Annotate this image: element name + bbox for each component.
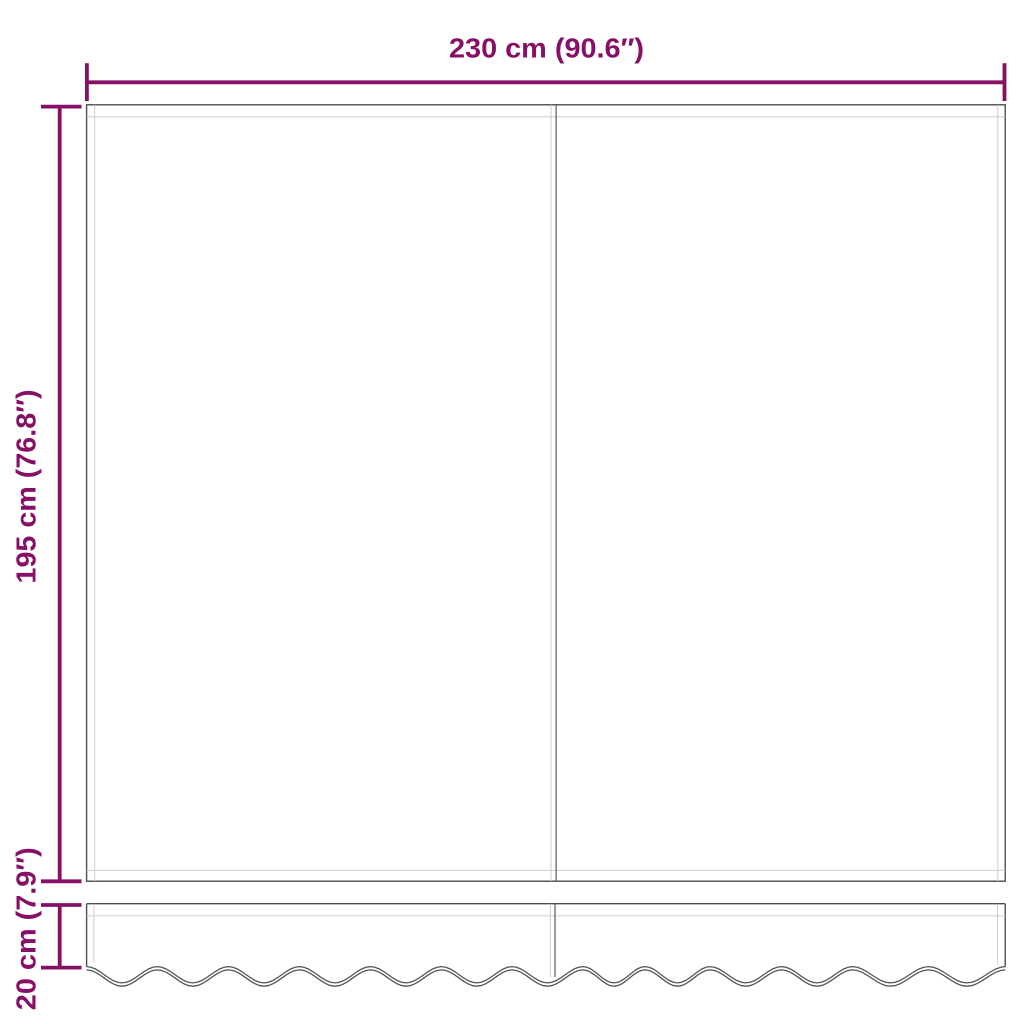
svg-text:195 cm (76.8″): 195 cm (76.8″) [11, 390, 42, 584]
svg-text:230 cm (90.6″): 230 cm (90.6″) [449, 32, 644, 63]
svg-text:20 cm (7.9″): 20 cm (7.9″) [11, 847, 42, 1010]
